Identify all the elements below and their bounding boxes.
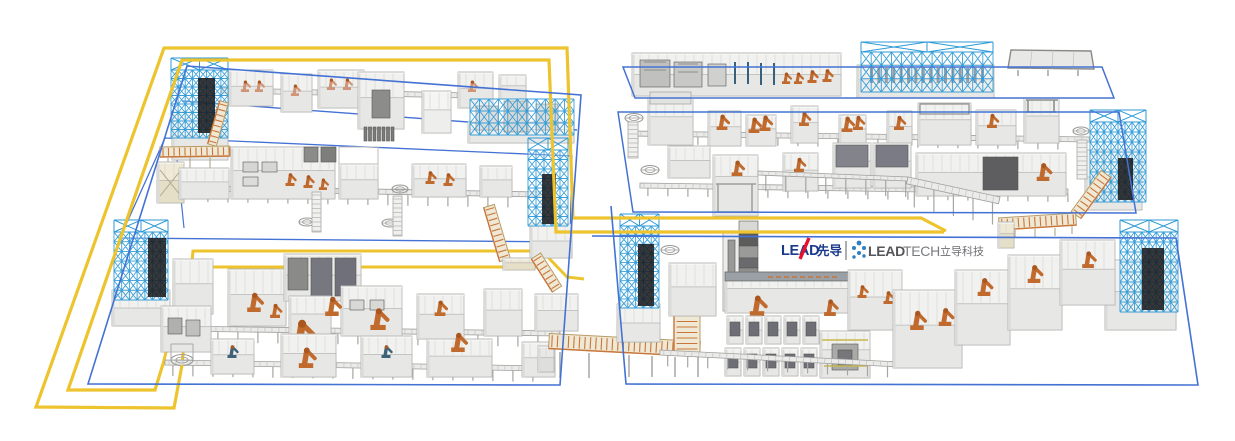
svg-text:先导: 先导 bbox=[817, 243, 843, 258]
svg-text:TECH: TECH bbox=[903, 243, 940, 259]
svg-text:立导科技: 立导科技 bbox=[940, 244, 984, 258]
svg-text:LEAD: LEAD bbox=[868, 243, 905, 259]
